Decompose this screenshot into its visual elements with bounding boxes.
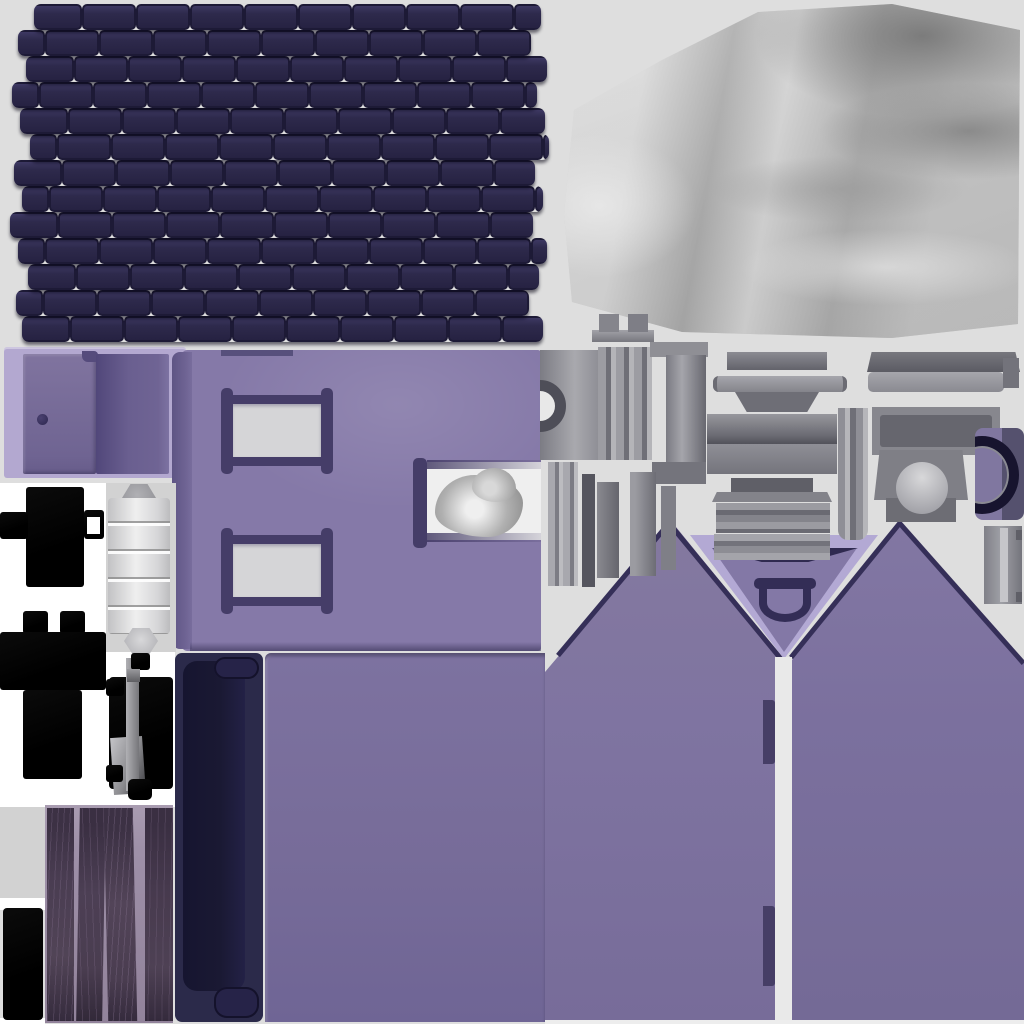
hw-c-stack2 bbox=[714, 534, 830, 560]
hw-c-trap bbox=[712, 492, 832, 502]
roof-shingle-tile bbox=[525, 82, 537, 108]
roof-shingle-tile bbox=[68, 108, 122, 134]
hw-cblock-ring bbox=[540, 380, 566, 432]
roof-shingle-tile bbox=[93, 82, 147, 108]
wall-notch-lip-top bbox=[427, 460, 541, 469]
roof-shingle-tile bbox=[232, 316, 286, 342]
roof-shingle-tile bbox=[454, 264, 508, 290]
wood-plank bbox=[76, 808, 106, 1021]
roof-shingle-tile bbox=[535, 186, 543, 212]
roof-shingle-sheet bbox=[8, 4, 549, 342]
roof-shingle-tile bbox=[398, 56, 452, 82]
roof-shingle-tile bbox=[12, 82, 39, 108]
window1-bar-top bbox=[231, 395, 322, 404]
roof-shingle-tile bbox=[22, 316, 70, 342]
roof-shingle-tile bbox=[219, 134, 273, 160]
roof-shingle-tile bbox=[116, 160, 170, 186]
pedestal-tab-upper bbox=[106, 679, 124, 696]
roof-shingle-tile bbox=[298, 4, 352, 30]
smoke-puff-lobe bbox=[472, 468, 516, 502]
hw-c-widebar bbox=[713, 376, 847, 392]
roof-shingle-tile bbox=[400, 264, 454, 290]
roof-shingle-tile bbox=[14, 160, 62, 186]
roof-shingle-row bbox=[28, 264, 539, 290]
door-knob bbox=[37, 414, 48, 425]
roof-shingle-tile bbox=[309, 82, 363, 108]
roof-shingle-tile bbox=[352, 4, 406, 30]
roof-shingle-tile bbox=[332, 160, 386, 186]
roof-shingle-tile bbox=[153, 238, 207, 264]
roof-shingle-tile bbox=[259, 290, 313, 316]
hw-column-base bbox=[652, 462, 706, 484]
roof-shingle-tile bbox=[340, 316, 394, 342]
roof-shingle-tile bbox=[182, 56, 236, 82]
roof-shingle-tile bbox=[16, 290, 43, 316]
hw-dome bbox=[896, 462, 948, 514]
hw-r-topslab bbox=[867, 352, 1020, 372]
navy-pill-bottom bbox=[214, 987, 259, 1018]
texture-atlas-canvas bbox=[0, 0, 1024, 1024]
roof-shingle-tile bbox=[363, 82, 417, 108]
roof-shingle-tile bbox=[178, 316, 232, 342]
roof-shingle-tile bbox=[45, 30, 99, 56]
roof-shingle-tile bbox=[122, 108, 176, 134]
door-leaf-right bbox=[96, 354, 169, 474]
roof-shingle-tile bbox=[427, 186, 481, 212]
window2-pane bbox=[232, 544, 321, 597]
roof-shingle-tile bbox=[286, 316, 340, 342]
roof-shingle-row bbox=[30, 134, 549, 160]
handle-plate bbox=[975, 428, 1024, 520]
roof-shingle-tile bbox=[20, 108, 68, 134]
black-bracket2-band bbox=[0, 632, 106, 690]
roof-shingle-tile bbox=[128, 56, 182, 82]
window1-post-right bbox=[321, 388, 333, 474]
roof-shingle-tile bbox=[130, 264, 184, 290]
hw-slat5 bbox=[661, 486, 676, 570]
roof-shingle-row bbox=[16, 290, 529, 316]
roof-shingle-tile bbox=[34, 4, 82, 30]
roof-shingle-tile bbox=[406, 4, 460, 30]
roof-shingle-tile bbox=[328, 212, 382, 238]
roof-shingle-tile bbox=[224, 160, 278, 186]
roof-shingle-tile bbox=[190, 4, 244, 30]
roof-shingle-tile bbox=[74, 56, 128, 82]
roof-shingle-tile bbox=[26, 56, 74, 82]
roof-shingle-tile bbox=[153, 30, 207, 56]
roof-shingle-tile bbox=[166, 212, 220, 238]
hw-small-bracket-tab1 bbox=[599, 314, 619, 332]
window1-pane bbox=[232, 404, 321, 457]
wall-top-notch bbox=[221, 350, 293, 356]
roof-shingle-tile bbox=[82, 4, 136, 30]
roof-shingle-tile bbox=[10, 212, 58, 238]
black-bracket2-tab1 bbox=[23, 611, 48, 634]
roof-shingle-tile bbox=[543, 134, 549, 160]
wood-plank bbox=[145, 808, 173, 1021]
roof-shingle-tile bbox=[124, 316, 178, 342]
pedestal-stem bbox=[127, 669, 140, 682]
navy-door-side bbox=[175, 653, 263, 1022]
black-bracket1-hole bbox=[87, 517, 100, 534]
roof-shingle-tile bbox=[57, 134, 111, 160]
roof-shingle-tile bbox=[273, 134, 327, 160]
roof-shingle-tile bbox=[344, 56, 398, 82]
roof-shingle-tile bbox=[471, 82, 525, 108]
roof-shingle-tile bbox=[255, 82, 309, 108]
roof-shingle-tile bbox=[315, 30, 369, 56]
roof-shingle-tile bbox=[313, 290, 367, 316]
hw-slat3 bbox=[597, 482, 619, 578]
roof-shingle-tile bbox=[489, 134, 543, 160]
roof-shingle-tile bbox=[327, 134, 381, 160]
black-bracket1-arm-left bbox=[0, 512, 28, 539]
roof-shingle-tile bbox=[338, 108, 392, 134]
roof-shingle-tile bbox=[284, 108, 338, 134]
roof-shingle-tile bbox=[62, 160, 116, 186]
handle-ring bbox=[975, 436, 1019, 514]
roof-shingle-tile bbox=[373, 186, 427, 212]
roof-shingle-tile bbox=[22, 186, 49, 212]
hw-fluted-block bbox=[598, 347, 652, 460]
roof-shingle-tile bbox=[490, 212, 533, 238]
roof-shingle-tile bbox=[436, 212, 490, 238]
door-leaf-left bbox=[23, 354, 96, 474]
roof-shingle-row bbox=[26, 56, 547, 82]
roof-shingle-tile bbox=[201, 82, 255, 108]
window-wall bbox=[172, 350, 541, 651]
roof-shingle-tile bbox=[423, 238, 477, 264]
roof-shingle-tile bbox=[45, 238, 99, 264]
roof-shingle-tile bbox=[494, 160, 535, 186]
roof-shingle-tile bbox=[43, 290, 97, 316]
gable-gap-strip bbox=[775, 657, 792, 1024]
roof-shingle-tile bbox=[244, 4, 298, 30]
wall-bottom-shadow bbox=[190, 642, 541, 651]
roof-shingle-tile bbox=[99, 238, 153, 264]
roof-shingle-tile bbox=[508, 264, 539, 290]
roof-shingle-tile bbox=[369, 238, 423, 264]
roof-shingle-tile bbox=[39, 82, 93, 108]
bedroll-body bbox=[108, 498, 170, 634]
roof-shingle-tile bbox=[435, 134, 489, 160]
roof-shingle-tile bbox=[211, 186, 265, 212]
hinge-tab-top bbox=[1016, 530, 1022, 540]
roof-shingle-tile bbox=[448, 316, 502, 342]
roof-shingle-row bbox=[12, 82, 537, 108]
roof-shingle-tile bbox=[165, 134, 219, 160]
roof-shingle-tile bbox=[417, 82, 471, 108]
roof-shingle-tile bbox=[367, 290, 421, 316]
roof-shingle-row bbox=[22, 186, 543, 212]
roof-shingle-tile bbox=[440, 160, 494, 186]
roof-shingle-tile bbox=[392, 108, 446, 134]
pedestal-cap-top bbox=[131, 653, 150, 670]
roof-shingle-tile bbox=[382, 212, 436, 238]
roof-shingle-row bbox=[14, 160, 535, 186]
roof-shingle-tile bbox=[386, 160, 440, 186]
roof-shingle-row bbox=[34, 4, 541, 30]
hw-c-slab1 bbox=[707, 414, 837, 444]
hinge-strip-highlight bbox=[1000, 528, 1008, 602]
wood-plank bbox=[47, 808, 74, 1021]
roof-shingle-tile bbox=[207, 30, 261, 56]
hw-slat4 bbox=[630, 472, 656, 576]
black-bar bbox=[3, 908, 43, 1020]
hw-r-slat bbox=[838, 408, 868, 540]
roof-shingle-tile bbox=[346, 264, 400, 290]
black-bracket1-body bbox=[26, 487, 84, 587]
roof-shingle-tile bbox=[97, 290, 151, 316]
roof-shingle-tile bbox=[18, 238, 45, 264]
roof-shingle-tile bbox=[76, 264, 130, 290]
window2-bar-top bbox=[231, 535, 322, 544]
hw-c-smallbar bbox=[731, 478, 813, 492]
roof-shingle-tile bbox=[28, 264, 76, 290]
roof-shingle-tile bbox=[502, 316, 543, 342]
hw-c-stack1 bbox=[716, 503, 830, 533]
navy-pill-top bbox=[214, 657, 259, 679]
roof-shingle-row bbox=[10, 212, 533, 238]
hw-r-tab bbox=[1003, 358, 1019, 388]
black-bracket2-stem bbox=[23, 690, 82, 779]
wood-plank bbox=[104, 808, 137, 1021]
roof-shingle-tile bbox=[423, 30, 477, 56]
roof-shingle-row bbox=[18, 30, 531, 56]
backing-gray-block bbox=[0, 807, 45, 898]
gable-gap-tab-lower bbox=[763, 906, 775, 986]
roof-shingle-tile bbox=[136, 4, 190, 30]
roof-shingle-tile bbox=[205, 290, 259, 316]
roof-shingle-tile bbox=[369, 30, 423, 56]
roof-shingle-tile bbox=[157, 186, 211, 212]
roof-shingle-tile bbox=[290, 56, 344, 82]
roof-shingle-tile bbox=[220, 212, 274, 238]
roof-shingle-tile bbox=[112, 212, 166, 238]
bottom-margin-line bbox=[545, 1020, 1024, 1024]
roof-shingle-tile bbox=[230, 108, 284, 134]
roof-shingle-tile bbox=[70, 316, 124, 342]
roof-shingle-tile bbox=[452, 56, 506, 82]
pedestal-cap-bottom bbox=[128, 779, 152, 800]
window2-post-right bbox=[321, 528, 333, 614]
roof-shingle-tile bbox=[261, 238, 315, 264]
hw-column-shaft bbox=[666, 355, 706, 465]
gable-gap-tab-upper bbox=[763, 700, 775, 764]
roof-shingle-tile bbox=[184, 264, 238, 290]
roof-shingle-tile bbox=[103, 186, 157, 212]
roof-shingle-tile bbox=[475, 290, 529, 316]
roof-shingle-tile bbox=[238, 264, 292, 290]
roof-shingle-tile bbox=[531, 238, 547, 264]
hw-c-slab2 bbox=[707, 444, 837, 474]
roof-shingle-tile bbox=[460, 4, 514, 30]
roof-shingle-tile bbox=[292, 264, 346, 290]
hw-slat2 bbox=[582, 474, 595, 587]
roof-shingle-tile bbox=[176, 108, 230, 134]
pedestal-tab-lower bbox=[106, 765, 123, 782]
roof-shingle-tile bbox=[506, 56, 547, 82]
valley-arch-curve bbox=[759, 584, 811, 622]
wall-notch-post bbox=[413, 458, 427, 548]
roof-shingle-tile bbox=[394, 316, 448, 342]
roof-shingle-tile bbox=[446, 108, 500, 134]
window2-bar-bottom bbox=[231, 597, 322, 606]
roof-shingle-tile bbox=[151, 290, 205, 316]
roof-shingle-tile bbox=[99, 30, 153, 56]
hinge-tab-bottom bbox=[1016, 592, 1022, 602]
roof-shingle-tile bbox=[319, 186, 373, 212]
roof-shingle-tile bbox=[477, 238, 531, 264]
roof-shingle-tile bbox=[30, 134, 57, 160]
roof-shingle-tile bbox=[477, 30, 531, 56]
hw-c-legs bbox=[735, 392, 819, 412]
hw-c-top bbox=[727, 352, 827, 370]
roof-shingle-tile bbox=[481, 186, 535, 212]
roof-shingle-tile bbox=[421, 290, 475, 316]
roof-shingle-tile bbox=[170, 160, 224, 186]
roof-shingle-tile bbox=[111, 134, 165, 160]
hw-slat1 bbox=[548, 462, 578, 586]
hw-cblock bbox=[540, 350, 598, 460]
roof-shingle-row bbox=[18, 238, 547, 264]
roof-shingle-tile bbox=[236, 56, 290, 82]
roof-shingle-tile bbox=[207, 238, 261, 264]
roof-shingle-tile bbox=[274, 212, 328, 238]
roof-shingle-tile bbox=[514, 4, 541, 30]
roof-shingle-tile bbox=[315, 238, 369, 264]
navy-inset-panel bbox=[183, 661, 245, 991]
roof-shingle-tile bbox=[261, 30, 315, 56]
hw-small-bracket-tab2 bbox=[628, 314, 648, 332]
roof-shingle-tile bbox=[381, 134, 435, 160]
roof-shingle-tile bbox=[265, 186, 319, 212]
roof-shingle-tile bbox=[500, 108, 545, 134]
roof-shingle-tile bbox=[147, 82, 201, 108]
roof-shingle-tile bbox=[49, 186, 103, 212]
roof-shingle-row bbox=[20, 108, 545, 134]
roof-shingle-tile bbox=[278, 160, 332, 186]
window1-bar-bottom bbox=[231, 457, 322, 466]
wood-plank-strip bbox=[45, 805, 173, 1023]
black-bracket2-tab2 bbox=[60, 611, 85, 634]
roof-shingle-row bbox=[22, 316, 543, 342]
fabric-sheet bbox=[562, 2, 1024, 342]
roof-shingle-tile bbox=[18, 30, 45, 56]
roof-shingle-tile bbox=[58, 212, 112, 238]
large-wall bbox=[265, 653, 545, 1022]
hw-r-bar bbox=[868, 372, 1004, 392]
